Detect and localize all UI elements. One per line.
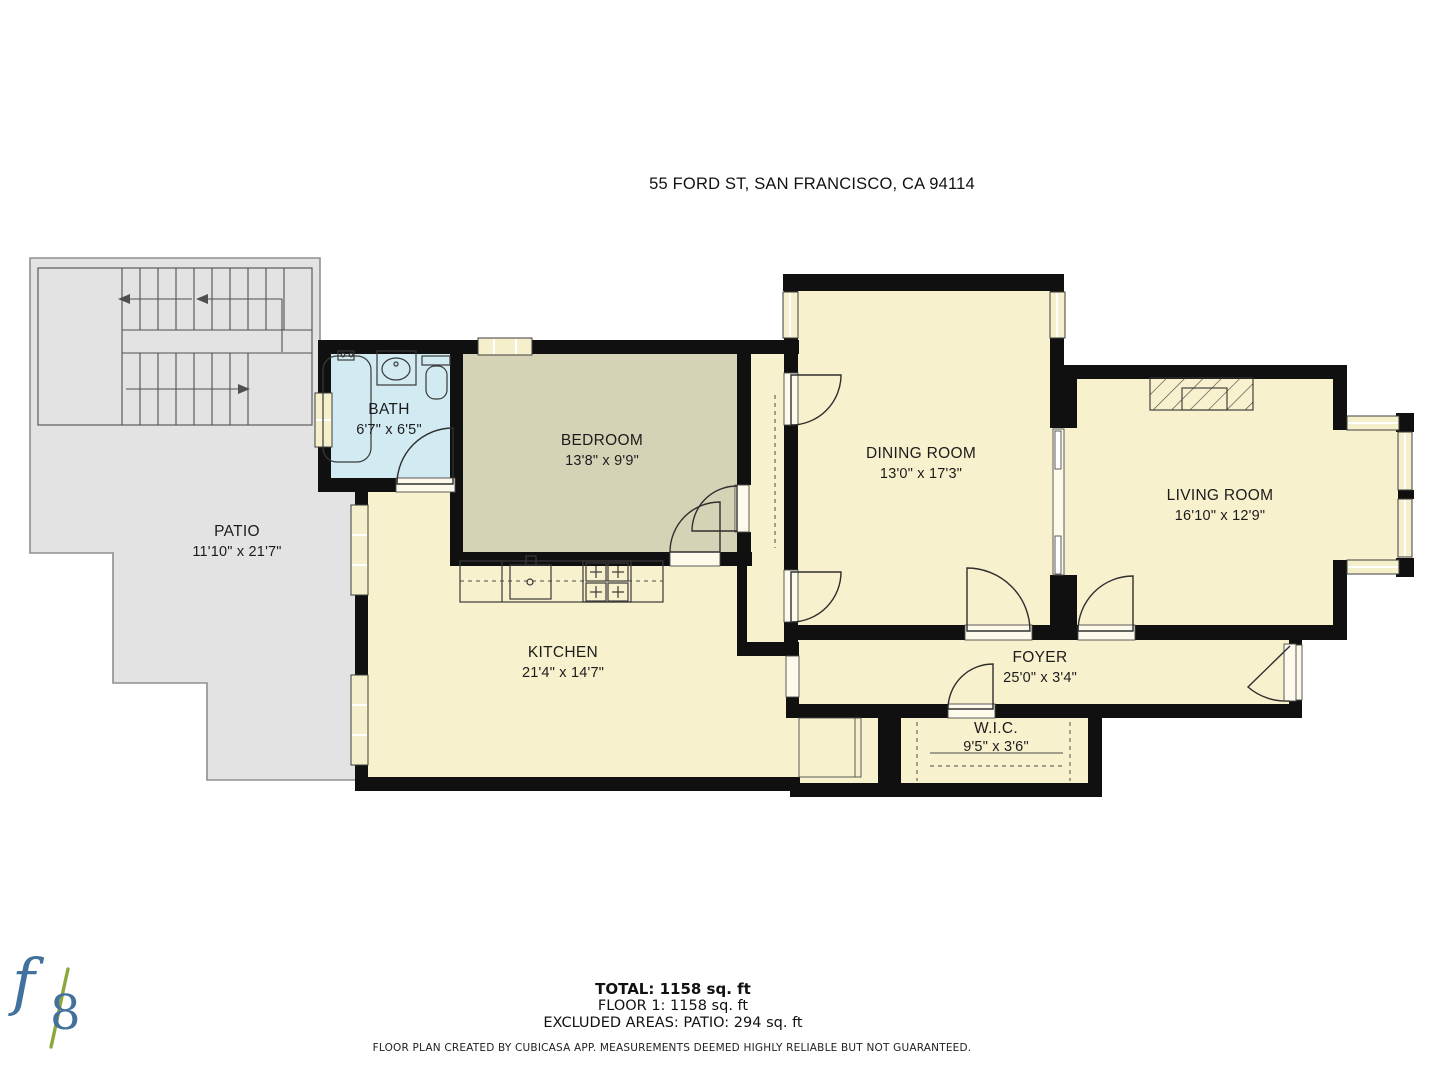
room-name: LIVING ROOM	[1167, 485, 1274, 506]
cubicasa-f8-logo: f 8	[10, 953, 100, 1058]
room-name: BEDROOM	[561, 430, 643, 451]
floor-plan-page: 55 FORD ST, SAN FRANCISCO, CA 94114 PATI…	[0, 0, 1440, 1080]
room-dims: 13'0" x 17'3"	[866, 464, 976, 485]
page-title: 55 FORD ST, SAN FRANCISCO, CA 94114	[649, 175, 975, 194]
kitchen-window-1	[351, 505, 368, 595]
room-name: BATH	[356, 399, 422, 420]
patio-area-shape	[30, 258, 368, 780]
room-label-dining-room: DINING ROOM 13'0" x 17'3"	[866, 443, 976, 485]
room-label-patio: PATIO 11'10" x 21'7"	[192, 521, 281, 563]
room-name: W.I.C.	[963, 719, 1029, 738]
room-dims: 25'0" x 3'4"	[1003, 668, 1077, 689]
disclaimer-text: FLOOR PLAN CREATED BY CUBICASA APP. MEAS…	[373, 1042, 972, 1054]
total-area: TOTAL: 1158 sq. ft	[543, 981, 802, 998]
room-dims: 9'5" x 3'6"	[963, 738, 1029, 757]
room-name: DINING ROOM	[866, 443, 976, 464]
room-label-foyer: FOYER 25'0" x 3'4"	[1003, 647, 1077, 689]
kitchen-window-2	[351, 675, 368, 765]
room-dims: 6'7" x 6'5"	[356, 420, 422, 441]
logo-eight: 8	[50, 985, 81, 1041]
room-label-bedroom: BEDROOM 13'8" x 9'9"	[561, 430, 643, 472]
room-label-bath: BATH 6'7" x 6'5"	[356, 399, 422, 441]
room-dims: 16'10" x 12'9"	[1167, 506, 1274, 527]
room-dims: 21'4" x 14'7"	[522, 663, 604, 684]
room-label-living-room: LIVING ROOM 16'10" x 12'9"	[1167, 485, 1274, 527]
area-summary: TOTAL: 1158 sq. ft FLOOR 1: 1158 sq. ft …	[543, 981, 802, 1032]
room-dims: 13'8" x 9'9"	[561, 451, 643, 472]
pocket-door-panel-2	[1055, 536, 1061, 574]
room-label-kitchen: KITCHEN 21'4" x 14'7"	[522, 642, 604, 684]
fireplace	[1150, 378, 1253, 410]
room-name: FOYER	[1003, 647, 1077, 668]
bedroom-window	[478, 338, 532, 355]
pocket-door-panel-1	[1055, 431, 1061, 469]
bay-window-shape	[1347, 426, 1400, 564]
floor-area: FLOOR 1: 1158 sq. ft	[543, 998, 802, 1015]
room-dims: 11'10" x 21'7"	[192, 542, 281, 563]
room-name: PATIO	[192, 521, 281, 542]
room-label-wic: W.I.C. 9'5" x 3'6"	[963, 719, 1029, 757]
excluded-area: EXCLUDED AREAS: PATIO: 294 sq. ft	[543, 1015, 802, 1032]
room-name: KITCHEN	[522, 642, 604, 663]
